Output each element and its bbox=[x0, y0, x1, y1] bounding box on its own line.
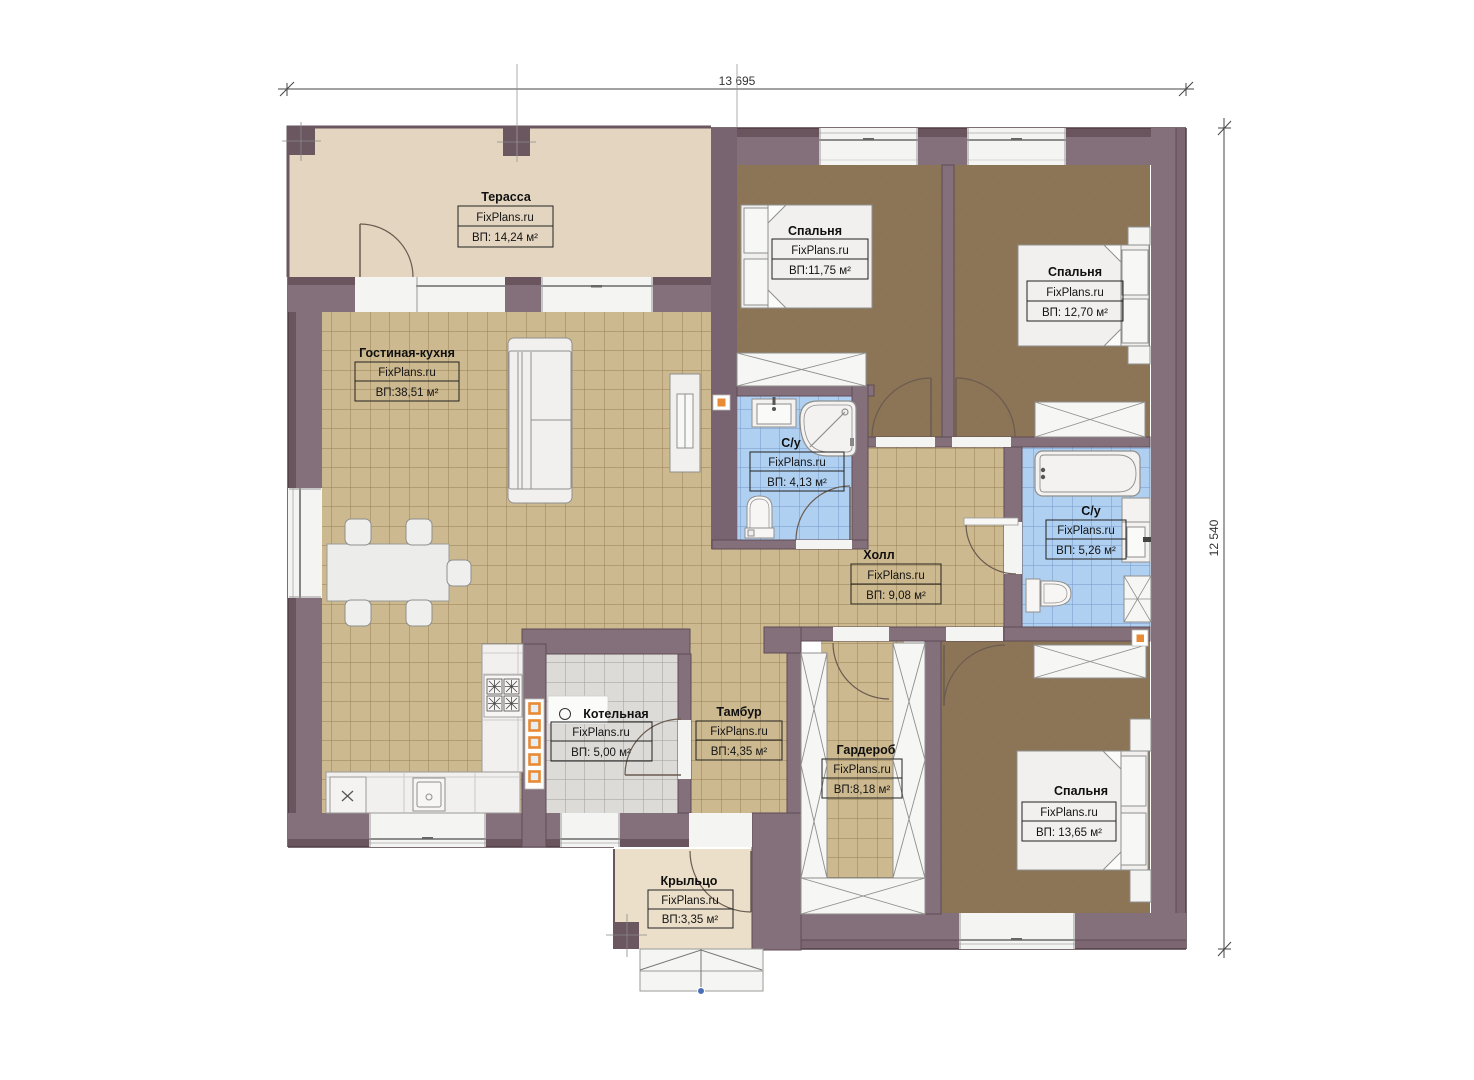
svg-text:ВП:11,75 м²: ВП:11,75 м² bbox=[789, 265, 851, 277]
svg-text:12 540: 12 540 bbox=[1207, 519, 1221, 556]
svg-text:FixPlans.ru: FixPlans.ru bbox=[710, 726, 768, 738]
svg-text:FixPlans.ru: FixPlans.ru bbox=[378, 367, 436, 379]
svg-text:Спальня: Спальня bbox=[1048, 265, 1102, 279]
svg-text:Терасса: Терасса bbox=[481, 190, 532, 204]
svg-text:ВП: 5,26 м²: ВП: 5,26 м² bbox=[1056, 545, 1116, 557]
svg-text:FixPlans.ru: FixPlans.ru bbox=[661, 895, 719, 907]
svg-text:Холл: Холл bbox=[863, 548, 894, 562]
svg-text:FixPlans.ru: FixPlans.ru bbox=[1040, 807, 1098, 819]
svg-text:FixPlans.ru: FixPlans.ru bbox=[1057, 525, 1115, 537]
svg-text:ВП: 12,70 м²: ВП: 12,70 м² bbox=[1042, 307, 1108, 319]
svg-text:ВП: 13,65 м²: ВП: 13,65 м² bbox=[1036, 827, 1102, 839]
svg-text:FixPlans.ru: FixPlans.ru bbox=[476, 212, 534, 224]
svg-text:FixPlans.ru: FixPlans.ru bbox=[867, 570, 925, 582]
svg-text:ВП:38,51 м²: ВП:38,51 м² bbox=[376, 387, 439, 399]
svg-text:Котельная: Котельная bbox=[583, 707, 648, 721]
svg-text:ВП: 5,00 м²: ВП: 5,00 м² bbox=[571, 747, 631, 759]
svg-text:ВП: 4,13 м²: ВП: 4,13 м² bbox=[767, 477, 827, 489]
svg-text:С/у: С/у bbox=[1081, 504, 1101, 518]
svg-text:ВП:4,35 м²: ВП:4,35 м² bbox=[711, 746, 768, 758]
svg-text:ВП:3,35 м²: ВП:3,35 м² bbox=[662, 914, 719, 926]
svg-text:С/у: С/у bbox=[781, 436, 801, 450]
svg-text:Спальня: Спальня bbox=[1054, 784, 1108, 798]
svg-text:ВП: 9,08 м²: ВП: 9,08 м² bbox=[866, 590, 926, 602]
svg-text:Гардероб: Гардероб bbox=[836, 743, 895, 757]
svg-text:FixPlans.ru: FixPlans.ru bbox=[768, 457, 826, 469]
svg-text:Крыльцо: Крыльцо bbox=[661, 874, 718, 888]
svg-text:Тамбур: Тамбур bbox=[716, 705, 762, 719]
svg-text:FixPlans.ru: FixPlans.ru bbox=[1046, 287, 1104, 299]
svg-text:FixPlans.ru: FixPlans.ru bbox=[833, 764, 891, 776]
svg-text:ВП: 14,24 м²: ВП: 14,24 м² bbox=[472, 232, 538, 244]
svg-text:FixPlans.ru: FixPlans.ru bbox=[791, 245, 849, 257]
svg-text:Спальня: Спальня bbox=[788, 224, 842, 238]
svg-text:FixPlans.ru: FixPlans.ru bbox=[572, 727, 630, 739]
svg-text:ВП:8,18 м²: ВП:8,18 м² bbox=[834, 784, 891, 796]
svg-text:Гостиная-кухня: Гостиная-кухня bbox=[359, 346, 455, 360]
